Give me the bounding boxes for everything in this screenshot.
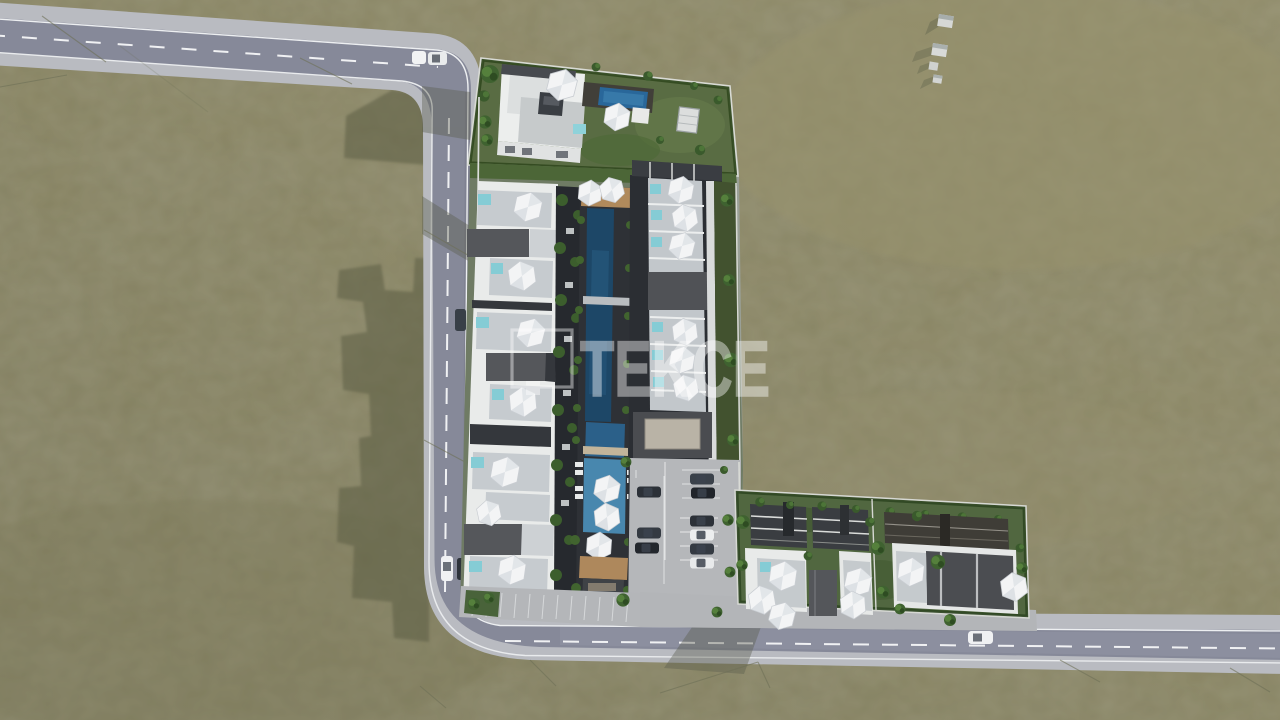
svg-text:TEKCE: TEKCE	[580, 324, 770, 413]
